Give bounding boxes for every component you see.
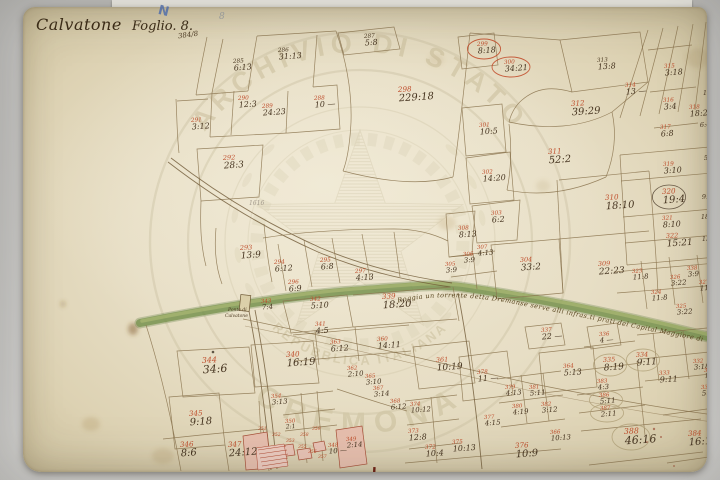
parcel-value: 10:13 [452, 443, 476, 454]
parcel-value: 3:4 [663, 102, 676, 112]
parcel-value: 5:13 [563, 367, 582, 377]
parcel-value: 10:13 [551, 433, 572, 442]
parcel-value: 24:23 [261, 107, 286, 118]
parcel-value: 2:1 [285, 423, 296, 431]
parcel-value: 3:10 [663, 165, 682, 175]
parcel-value: 3:22 [677, 307, 694, 316]
parcel-value: 3:9 [464, 256, 476, 265]
parcel-value: 18:2 [689, 108, 708, 118]
parcel-value: 10:12 [411, 405, 432, 414]
parcel-value: 16:19 [286, 356, 316, 369]
parcel-value: 13:8 [597, 61, 616, 71]
parcel-value: 9:11 [659, 374, 678, 384]
parcel-value: 3:18 [664, 67, 683, 77]
parcel-value: 6:8 [320, 262, 333, 272]
village-parcel-id: 356 [308, 449, 317, 455]
parcel-value: 11:8 [652, 293, 669, 302]
pencil-mark-number: 8 [219, 12, 225, 22]
parcel-value: 14:20 [482, 173, 506, 184]
parcel-value: 10:4 [425, 448, 444, 458]
parcel-value: 31:13 [278, 51, 302, 62]
parcel-value: 18:20 [382, 298, 412, 311]
edge-parcel-value: 13:2 [703, 88, 718, 97]
parcel-value: 3:13 [272, 397, 289, 406]
village-parcel-id: 358 [300, 432, 309, 438]
parcel-value: 15:21 [666, 238, 693, 250]
parcel-value: 6:12 [391, 402, 408, 411]
parcel-value: 13:9 [240, 250, 261, 261]
parcel-value: 3:12 [542, 405, 559, 414]
pencil-note-1616: 1616 [249, 200, 264, 207]
village-parcel-id: 351 [258, 426, 267, 432]
parcel-value: 6:9 [288, 284, 301, 294]
parcel-value: 7:4 [262, 303, 274, 312]
parcel-value: 28:3 [222, 160, 244, 171]
parcel-value: 22 — [540, 331, 562, 341]
village-parcel-id: 353 [286, 438, 295, 444]
parcel-value: 5:11 [530, 388, 546, 397]
parcel-value: 3:14 [374, 389, 390, 398]
parcel-value: 6:12 [274, 263, 293, 273]
village-parcel-id: 352 [272, 432, 281, 438]
village-parcel-id: 359 [312, 426, 321, 432]
parcel-value: 34:21 [504, 63, 528, 74]
parcel-value: 11:8 [633, 272, 650, 281]
parcel-value: 11:13 [700, 283, 720, 292]
parcel-value: 8:6 [180, 447, 197, 459]
parcel-value: 4:15 [484, 418, 502, 427]
parcel-value: 5:10 [310, 300, 329, 310]
parcel-value: 16:13 [688, 435, 718, 448]
edge-parcel-value: 18: [701, 212, 712, 221]
parcel-value: 5:8 [364, 38, 377, 48]
parcel-value: 46:16 [623, 432, 657, 447]
village-parcel-id: 355 [298, 444, 307, 450]
parcel-value: 3:22 [671, 278, 688, 287]
parcel-value: 12:3 [238, 99, 257, 109]
svg-text:Calvatone: Calvatone [225, 313, 248, 319]
parcel-value: 13 — [625, 86, 646, 96]
parcel-value: 18:10 [605, 199, 635, 212]
parcel-value: 3:9 [446, 266, 458, 275]
edge-parcel-value: 5:10 [704, 153, 719, 162]
map-title-place: Calvatone [36, 15, 122, 34]
parcel-value: 4:5 [314, 326, 328, 336]
parcel-value: 4:3 [597, 383, 610, 392]
parcel-value: 8:10 [662, 219, 681, 229]
parcel-value: 3:12 [191, 121, 210, 131]
parcel-value: 9:18 [189, 416, 212, 429]
parcel-value: 8:13 [458, 229, 477, 239]
parcel-value: 6:12 [330, 343, 349, 353]
map-canvas: ARCHIVIO DI STATO CREMONA REPUBBLICA ITA… [0, 0, 720, 480]
parcel-value: 5:11 [702, 388, 718, 397]
parcel-value: 3:9 [688, 270, 700, 279]
parcel-value: 34:6 [202, 362, 228, 377]
parcel-value: 10 — [314, 99, 335, 109]
parcel-value: 2:10 [347, 369, 365, 378]
edge-parcel-value: 9:4 [702, 192, 713, 201]
parcel-value: 33:2 [520, 262, 541, 273]
parcel-value: 8:18 [477, 45, 496, 55]
parcel-value: 52:2 [548, 154, 571, 167]
parcel-value: 10:19 [436, 362, 463, 374]
church-block [256, 444, 288, 470]
parcel-value: 229:18 [397, 91, 434, 104]
parcel-value: 4:13 [477, 248, 495, 257]
parcel-value: 4:19 [512, 407, 530, 416]
parcel-value: 4 — [599, 336, 614, 345]
parcel-value: 12:8 [408, 432, 427, 442]
parcel-value: 2:11 [600, 409, 617, 418]
parcel-value: 39:29 [571, 105, 601, 118]
parcel-value: 4:13 [505, 388, 523, 397]
parcel-value: 24:12 [227, 446, 258, 459]
parcel-value: 4:13 [354, 272, 374, 282]
parcel-value: 14:11 [377, 340, 401, 351]
parcel-value: 22:23 [597, 266, 625, 278]
parcel-value: 11 — [477, 373, 498, 383]
parcel-value: 10:5 [479, 126, 498, 136]
scanned-map-page: ARCHIVIO DI STATO CREMONA REPUBBLICA ITA… [0, 0, 720, 480]
parcel-value: 6:13 [233, 62, 252, 72]
parcel-value: 6:2 [491, 215, 504, 225]
parcel-value: 9:11 [636, 357, 657, 368]
village-parcel-id: 357 [318, 454, 327, 460]
edge-parcel-value: 6:4 [700, 120, 711, 129]
parcel-value: 10:9 [515, 448, 539, 461]
parcel-value: 3:18 [694, 362, 711, 371]
parcel-value: 1:8 [705, 372, 715, 380]
edge-parcel-value: 13:12 [702, 234, 720, 243]
parcel-value: 8:19 [603, 362, 624, 373]
parcel-value: 6:8 [660, 129, 673, 139]
parcel-value: 2:14 [346, 440, 363, 449]
svg-text:Ponte di: Ponte di [227, 307, 247, 313]
parcel-value: 10 — [329, 446, 348, 455]
